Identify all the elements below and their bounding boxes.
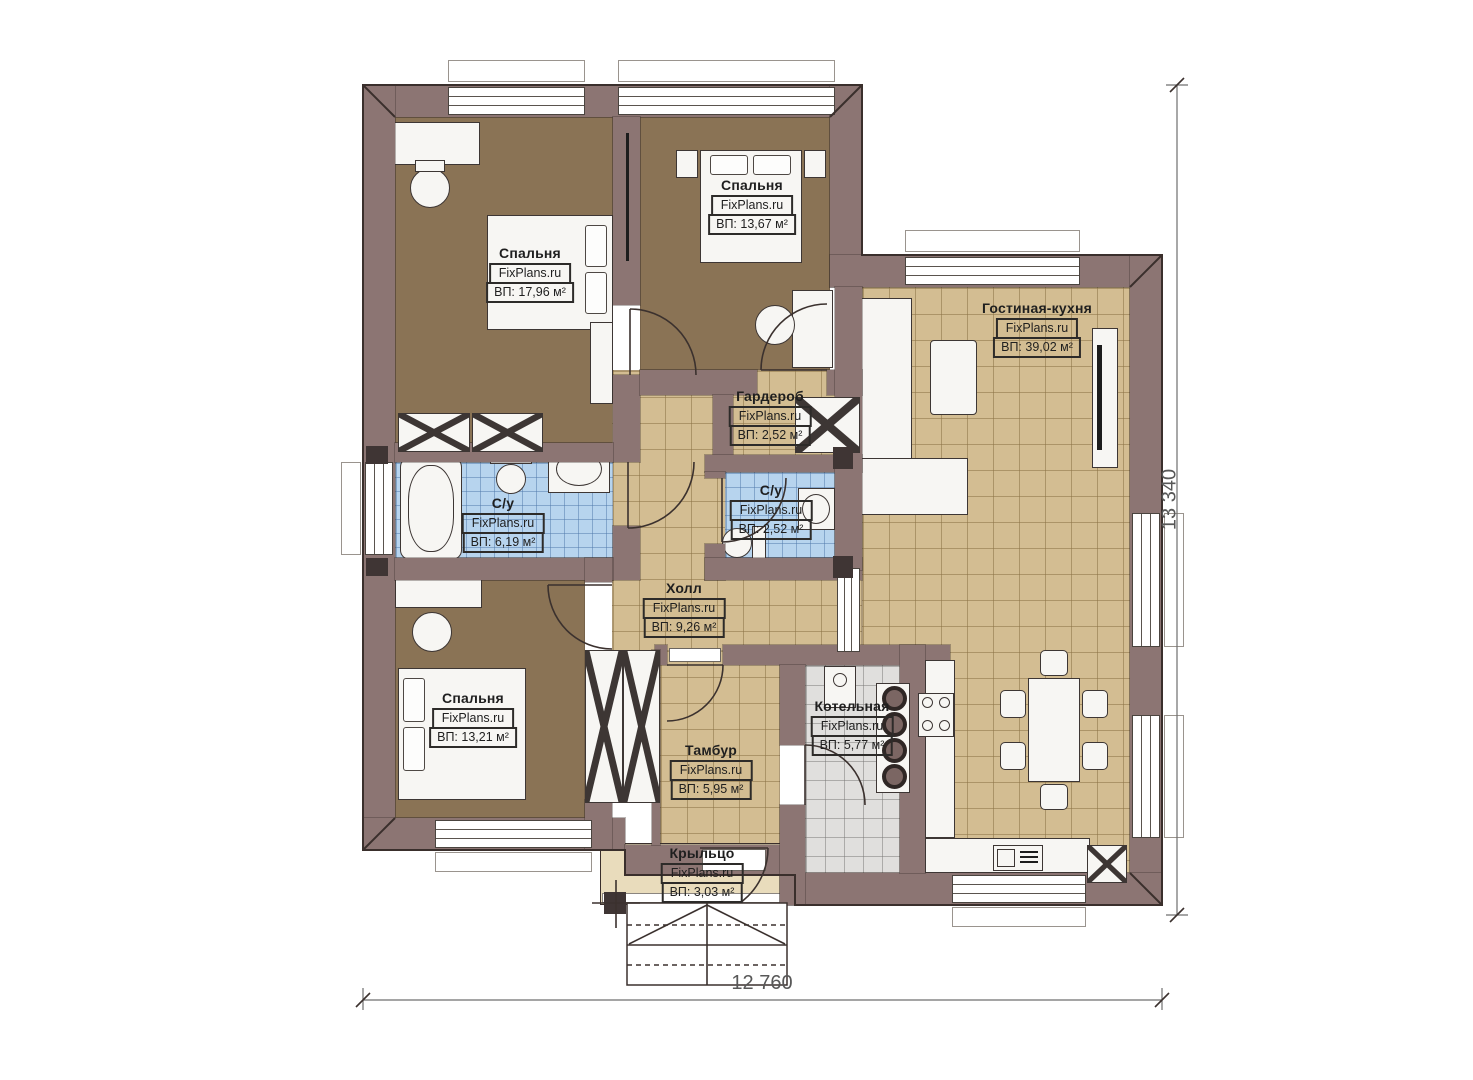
pillow-icon [753, 155, 791, 175]
tv-stand-icon [1092, 328, 1118, 468]
desk-icon [390, 122, 480, 165]
pillow-icon [403, 727, 425, 771]
room-area: ВП: 5,77 м² [812, 735, 893, 756]
window [365, 462, 393, 555]
dimension-width: 12 760 [731, 972, 792, 995]
dim-tick [1170, 78, 1184, 92]
window-sill [341, 462, 361, 555]
burner-icon [939, 697, 950, 708]
vent-shaft [833, 556, 853, 578]
wall-segment [585, 558, 612, 582]
room-label-vestibule: Тамбур FixPlans.ru ВП: 5,95 м² [670, 742, 753, 800]
brand-watermark: FixPlans.ru [711, 195, 794, 216]
dresser-icon [590, 322, 613, 404]
stairs-diagonal [707, 905, 785, 944]
closet-icon [585, 650, 623, 803]
wall-segment [780, 805, 805, 905]
burner-icon [922, 720, 933, 731]
room-label-bedroom-3: Спальня FixPlans.ru ВП: 13,21 м² [429, 690, 517, 748]
dim-tick [356, 993, 370, 1007]
vent-shaft [366, 446, 388, 464]
room-label-living-kitchen: Гостиная-кухня FixPlans.ru ВП: 39,02 м² [982, 300, 1092, 358]
room-name: Спальня [499, 245, 561, 261]
coffee-table-icon [930, 340, 977, 415]
room-label-bathroom-1: С/у FixPlans.ru ВП: 6,19 м² [462, 495, 545, 553]
fridge-icon [1087, 845, 1127, 883]
room-label-bedroom-1: Спальня FixPlans.ru ВП: 17,96 м² [486, 245, 574, 303]
room-area: ВП: 6,19 м² [463, 532, 544, 553]
room-label-hall: Холл FixPlans.ru ВП: 9,26 м² [643, 580, 726, 638]
brand-watermark: FixPlans.ru [462, 513, 545, 534]
room-area: ВП: 13,67 м² [708, 214, 796, 235]
drainboard-icon [1020, 856, 1038, 858]
dim-tick [1170, 908, 1184, 922]
window [448, 87, 585, 115]
room-name: Гостиная-кухня [982, 300, 1092, 316]
chair-back-icon [415, 160, 445, 172]
room-name: Тамбур [685, 742, 737, 758]
wall-segment [705, 472, 725, 478]
chair-icon [1000, 742, 1026, 770]
chair-icon [412, 612, 452, 652]
sofa-chaise-icon [860, 458, 968, 515]
window-sill [618, 60, 835, 82]
room-name: Крыльцо [669, 845, 734, 861]
door-threshold [669, 648, 721, 662]
room-area: ВП: 5,95 м² [671, 779, 752, 800]
window-sill [435, 852, 592, 872]
wall-segment [780, 665, 805, 745]
room-area: ВП: 9,26 м² [644, 617, 725, 638]
wall-segment [395, 558, 613, 580]
chair-icon [1040, 784, 1068, 810]
room-area: ВП: 13,21 м² [429, 727, 517, 748]
wardrobe-rail-icon [626, 133, 629, 261]
wall-segment [613, 375, 640, 462]
pocket-opening [837, 568, 860, 652]
closet-icon [398, 413, 470, 452]
room-name: Холл [666, 580, 702, 596]
window [1132, 513, 1160, 647]
brand-watermark: FixPlans.ru [996, 318, 1079, 339]
room-name: Спальня [442, 690, 504, 706]
burner-icon [939, 720, 950, 731]
stairs-diagonal [629, 905, 707, 944]
floor-plan-canvas: Спальня FixPlans.ru ВП: 17,96 м² Спальня… [0, 0, 1473, 1080]
wall-segment [613, 526, 640, 580]
brand-watermark: FixPlans.ru [729, 406, 812, 427]
boiler-tank-icon [882, 764, 907, 789]
drainboard-icon [1020, 851, 1038, 853]
pillow-icon [585, 225, 607, 267]
chair-icon [1040, 650, 1068, 676]
window [1132, 715, 1160, 838]
dining-table-icon [1028, 678, 1080, 782]
room-name: С/у [492, 495, 514, 511]
room-area: ВП: 3,03 м² [662, 882, 743, 903]
window-sill [952, 907, 1086, 927]
room-label-wardrobe: Гардероб FixPlans.ru ВП: 2,52 м² [729, 388, 812, 446]
brand-watermark: FixPlans.ru [643, 598, 726, 619]
kitchen-counter-icon [925, 660, 955, 838]
bathtub-inner-icon [408, 465, 454, 552]
brand-watermark: FixPlans.ru [432, 708, 515, 729]
tv-icon [1097, 345, 1102, 450]
drainboard-icon [1020, 861, 1038, 863]
closet-icon [623, 650, 660, 803]
chair-icon [1000, 690, 1026, 718]
room-label-bathroom-2: С/у FixPlans.ru ВП: 2,52 м² [730, 482, 813, 540]
room-name: Гардероб [736, 388, 804, 404]
window-sill [905, 230, 1080, 252]
room-area: ВП: 2,52 м² [731, 519, 812, 540]
desk-icon [792, 290, 833, 368]
room-area: ВП: 17,96 м² [486, 282, 574, 303]
room-label-bedroom-2: Спальня FixPlans.ru ВП: 13,67 м² [708, 177, 796, 235]
window [905, 257, 1080, 285]
brand-watermark: FixPlans.ru [489, 263, 572, 284]
room-label-porch: Крыльцо FixPlans.ru ВП: 3,03 м² [661, 845, 744, 903]
pillow-icon [710, 155, 748, 175]
room-name: Спальня [721, 177, 783, 193]
chair-icon [1082, 690, 1108, 718]
brand-watermark: FixPlans.ru [730, 500, 813, 521]
window [618, 87, 835, 115]
window [435, 820, 592, 848]
nightstand-icon [676, 150, 698, 178]
vent-shaft [366, 558, 388, 576]
room-name: С/у [760, 482, 782, 498]
room-area: ВП: 2,52 м² [730, 425, 811, 446]
vent-shaft [833, 447, 853, 469]
chair-icon [410, 168, 450, 208]
room-area: ВП: 39,02 м² [993, 337, 1081, 358]
pillow-icon [403, 678, 425, 722]
chair-icon [1082, 742, 1108, 770]
pillow-icon [585, 272, 607, 314]
burner-icon [922, 697, 933, 708]
closet-icon [472, 413, 543, 452]
brand-watermark: FixPlans.ru [811, 716, 894, 737]
chair-icon [755, 305, 795, 345]
sink-bowl-icon [997, 849, 1015, 867]
window [952, 875, 1086, 903]
nightstand-icon [804, 150, 826, 178]
survey-marker [604, 892, 626, 914]
boiler-fixture-knob-icon [833, 673, 847, 687]
window-sill [448, 60, 585, 82]
room-name: Котельная [814, 698, 889, 714]
toilet-bowl-icon [496, 464, 526, 494]
dim-tick [1155, 993, 1169, 1007]
dimension-height: 13 340 [1159, 465, 1182, 535]
brand-watermark: FixPlans.ru [661, 863, 744, 884]
room-label-boiler-room: Котельная FixPlans.ru ВП: 5,77 м² [811, 698, 894, 756]
window-sill [1164, 715, 1184, 838]
brand-watermark: FixPlans.ru [670, 760, 753, 781]
